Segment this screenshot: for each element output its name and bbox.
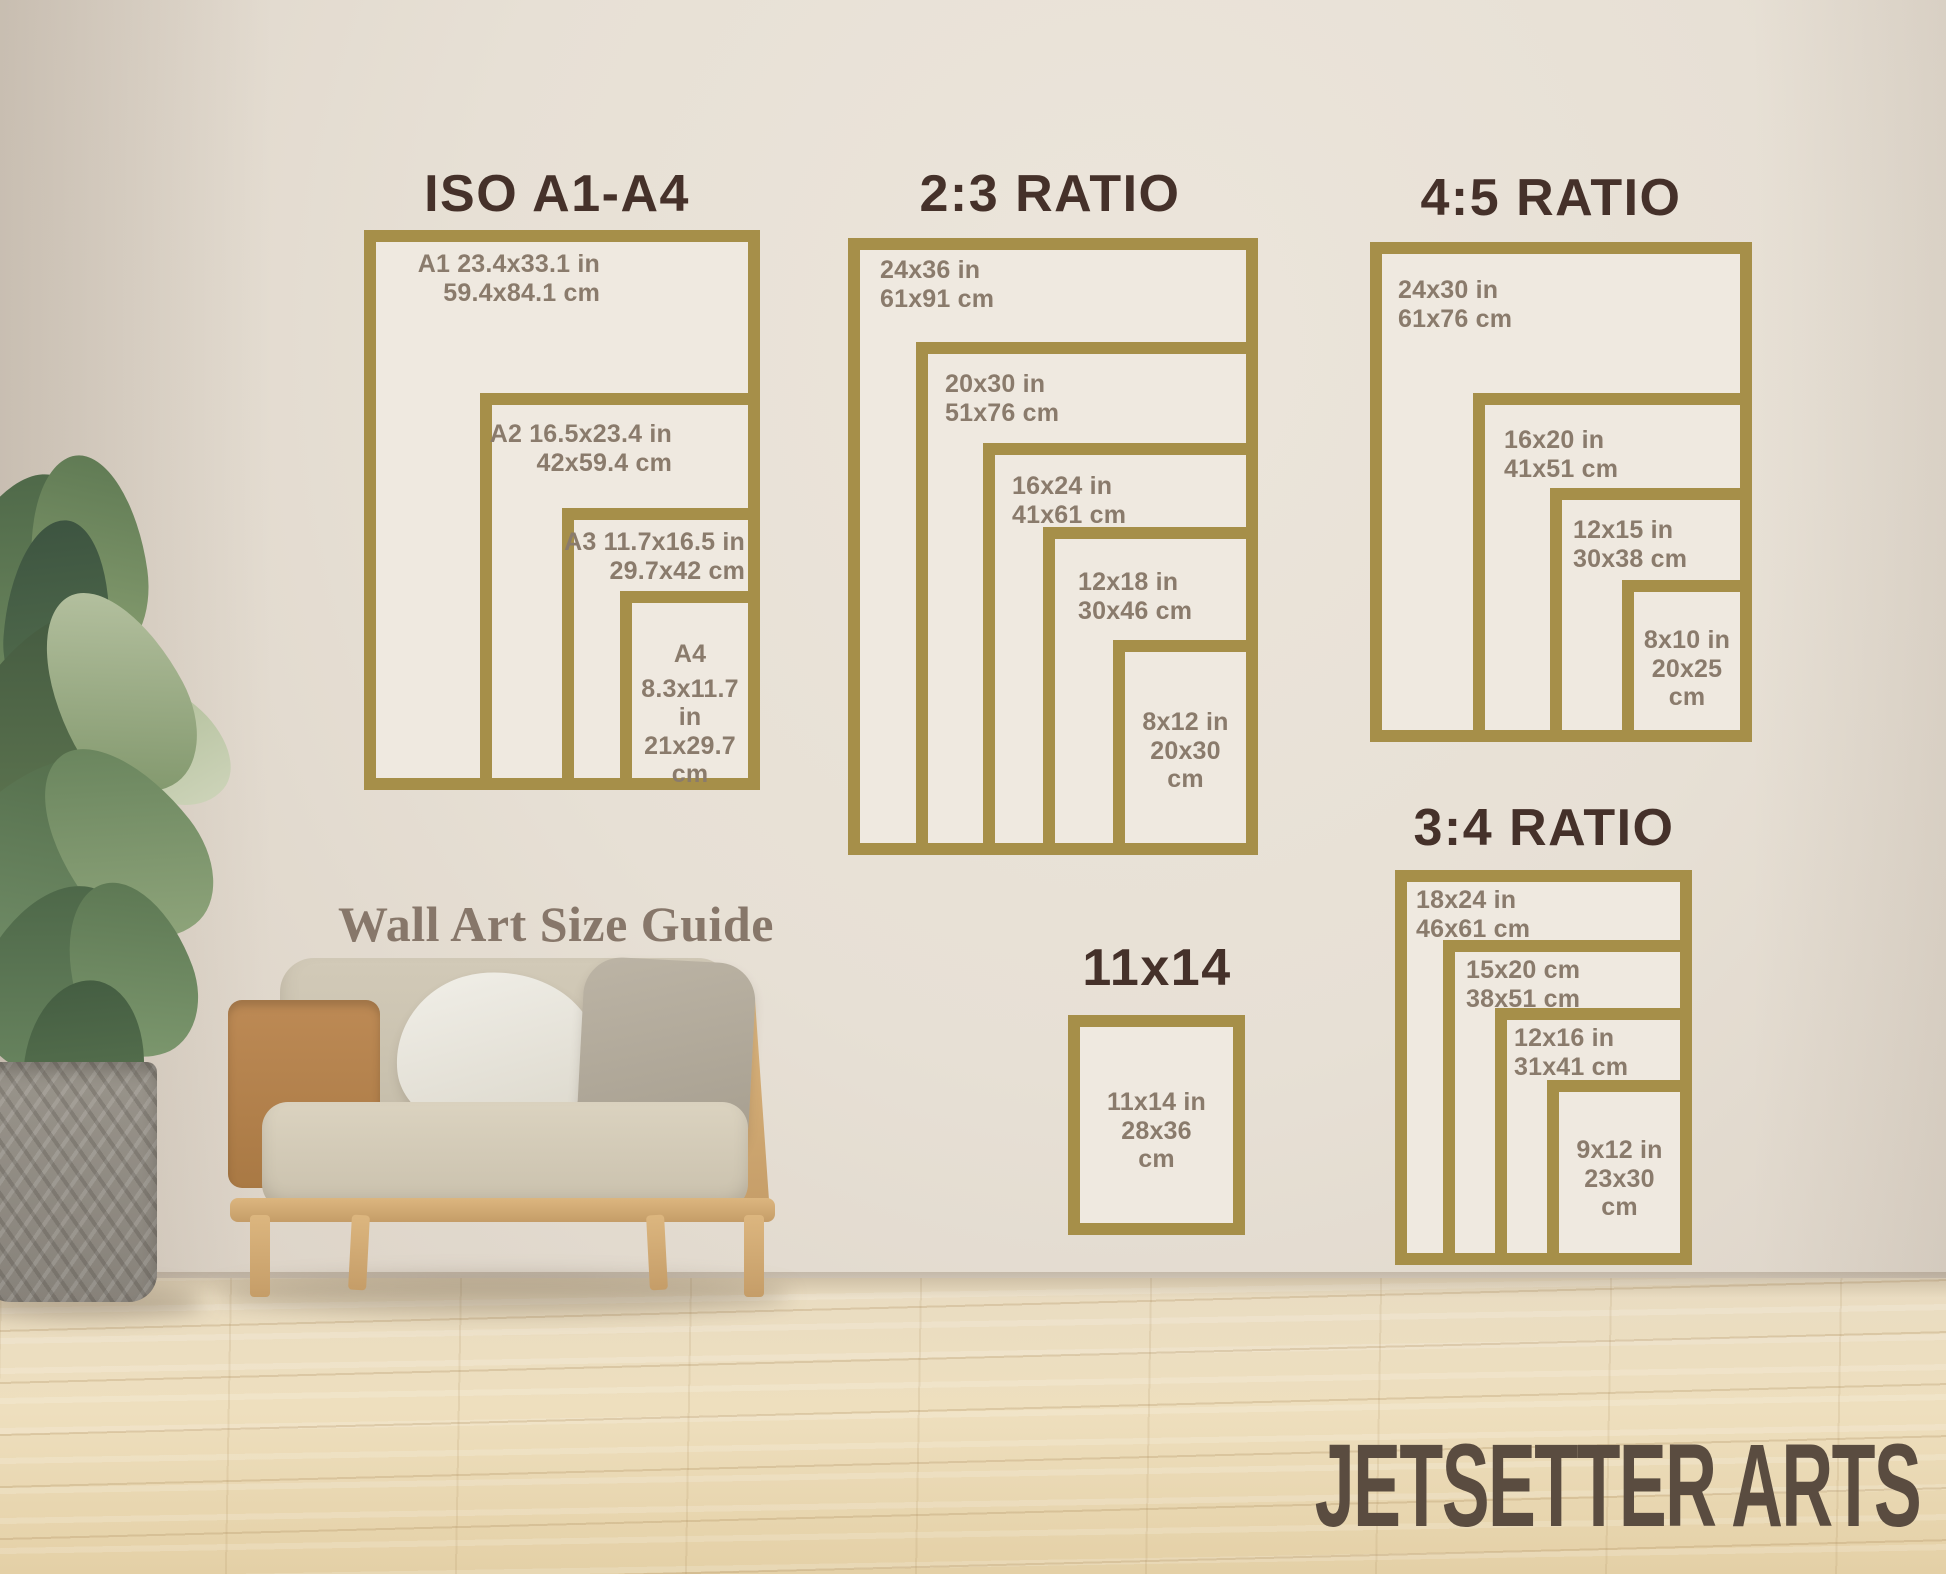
size-line: 41x61 cm (1012, 501, 1126, 530)
size-line: A1 23.4x33.1 in (380, 250, 600, 279)
size-line: 11x14 in (1086, 1088, 1227, 1117)
size-line: A2 16.5x23.4 in (462, 420, 672, 449)
section-title: 4:5 RATIO (1420, 172, 1681, 224)
size-line: 42x59.4 cm (462, 449, 672, 478)
frame-label-16x20: 16x20 in 41x51 cm (1504, 426, 1618, 483)
size-line: 18x24 in (1416, 886, 1530, 915)
size-line: 8x10 in (1634, 626, 1740, 655)
size-line: 59.4x84.1 cm (380, 279, 600, 308)
size-line: cm (1560, 1193, 1679, 1222)
frame-label-a3: A3 11.7x16.5 in 29.7x42 cm (548, 528, 745, 585)
size-line: 12x15 in (1573, 516, 1687, 545)
chair-leg (646, 1215, 668, 1291)
size-line: 8.3x11.7 in (632, 675, 748, 732)
section-title: 2:3 RATIO (919, 168, 1180, 220)
frame-label-a1: A1 23.4x33.1 in 59.4x84.1 cm (380, 250, 600, 307)
size-line: cm (632, 760, 748, 789)
section-title: 11x14 (1082, 942, 1231, 994)
frame-label-15x20: 15x20 cm 38x51 cm (1466, 956, 1580, 1013)
size-line: 31x41 cm (1514, 1053, 1628, 1082)
size-line: 24x36 in (880, 256, 994, 285)
size-line: 61x91 cm (880, 285, 994, 314)
frame-label-11x14: 11x14 in 28x36 cm (1086, 1088, 1227, 1174)
size-line: cm (1125, 765, 1246, 794)
size-line: 51x76 cm (945, 399, 1059, 428)
size-line: 8x12 in (1125, 708, 1246, 737)
size-line: 23x30 (1560, 1165, 1679, 1194)
size-line: 9x12 in (1560, 1136, 1679, 1165)
chair-shadow (215, 1276, 790, 1314)
size-line: 61x76 cm (1398, 305, 1512, 334)
frame-label-12x15: 12x15 in 30x38 cm (1573, 516, 1687, 573)
size-line: 30x46 cm (1078, 597, 1192, 626)
brand-watermark: JETSETTER ARTS (1315, 1420, 1920, 1554)
frame-label-a2: A2 16.5x23.4 in 42x59.4 cm (462, 420, 672, 477)
size-line: A3 11.7x16.5 in (548, 528, 745, 557)
size-line: 28x36 (1086, 1117, 1227, 1146)
frame-label-a4: A4 8.3x11.7 in 21x29.7 cm (632, 640, 748, 789)
frame-label-16x24: 16x24 in 41x61 cm (1012, 472, 1126, 529)
section-title: ISO A1-A4 (424, 168, 690, 220)
size-line: 16x20 in (1504, 426, 1618, 455)
size-line: 38x51 cm (1466, 985, 1580, 1014)
plant-basket (0, 1062, 157, 1302)
frame-label-24x30: 24x30 in 61x76 cm (1398, 276, 1512, 333)
size-line: 20x30 (1125, 737, 1246, 766)
section-title: 3:4 RATIO (1413, 802, 1674, 854)
chair-leg (250, 1215, 270, 1297)
size-line: 21x29.7 (632, 732, 748, 761)
size-line: 46x61 cm (1416, 915, 1530, 944)
size-line: 30x38 cm (1573, 545, 1687, 574)
frame-label-20x30: 20x30 in 51x76 cm (945, 370, 1059, 427)
size-line: cm (1634, 683, 1740, 712)
size-line: A4 (632, 640, 748, 669)
frame-label-24x36: 24x36 in 61x91 cm (880, 256, 994, 313)
room-scene: ISO A1-A4 A1 23.4x33.1 in 59.4x84.1 cm A… (0, 0, 1946, 1574)
size-line: 29.7x42 cm (548, 557, 745, 586)
frame-label-12x16: 12x16 in 31x41 cm (1514, 1024, 1628, 1081)
size-line: 20x30 in (945, 370, 1059, 399)
size-line: 20x25 (1634, 655, 1740, 684)
size-line: 41x51 cm (1504, 455, 1618, 484)
guide-caption: Wall Art Size Guide (338, 895, 774, 953)
frame-label-8x10: 8x10 in 20x25 cm (1634, 626, 1740, 712)
frame-label-12x18: 12x18 in 30x46 cm (1078, 568, 1192, 625)
size-line: 15x20 cm (1466, 956, 1580, 985)
chair-wood-rail (230, 1198, 775, 1222)
chair-leg (744, 1215, 764, 1297)
size-line: 24x30 in (1398, 276, 1512, 305)
size-line: 12x16 in (1514, 1024, 1628, 1053)
frame-label-9x12: 9x12 in 23x30 cm (1560, 1136, 1679, 1222)
frame-label-8x12: 8x12 in 20x30 cm (1125, 708, 1246, 794)
size-line: cm (1086, 1145, 1227, 1174)
frame-label-18x24: 18x24 in 46x61 cm (1416, 886, 1530, 943)
size-line: 12x18 in (1078, 568, 1192, 597)
size-line: 16x24 in (1012, 472, 1126, 501)
chair-seat-cushion (262, 1102, 748, 1210)
